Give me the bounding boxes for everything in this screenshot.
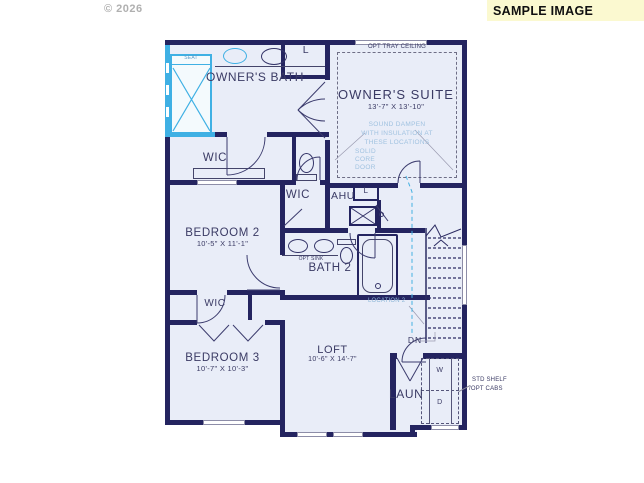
vanity-counter: [215, 66, 325, 67]
screenshot: © 2026 SAMPLE IMAGE: [0, 0, 644, 483]
wall: [420, 183, 467, 188]
cased-opening: [197, 180, 237, 185]
wall: [248, 295, 252, 320]
dryer-label: D: [421, 399, 459, 407]
floor-plan: OPT TRAY CEILING OWNER'S SUITE 13'-7" X …: [165, 40, 467, 440]
sound-note-line1: SOUND DAMPEN: [333, 121, 461, 128]
wall: [267, 132, 329, 137]
linen-hall-label: L: [353, 186, 379, 195]
shower: [170, 54, 212, 134]
tray-ceiling-label: OPT TRAY CEILING: [330, 44, 464, 51]
shower-seat-label: SEAT: [170, 56, 212, 62]
std-shelf-note-line2: /OPT CABS: [469, 386, 503, 392]
wic-shelf: [193, 168, 265, 179]
wic2-label: WIC: [273, 189, 323, 202]
loft-dim: 10'-6" X 14'-7": [280, 356, 385, 364]
wic-owner-label: WIC: [185, 152, 245, 165]
wall: [165, 180, 197, 185]
sample-image-label: SAMPLE IMAGE: [487, 4, 593, 18]
washer-label: W: [421, 367, 459, 375]
owners-suite-dim: 13'-7" X 13'-10": [330, 103, 462, 112]
std-shelf-note-line1: STD SHELF: [472, 377, 507, 383]
sink-icon: [314, 239, 334, 253]
sink-icon: [288, 239, 308, 253]
wall: [227, 290, 285, 295]
sink-icon: [261, 48, 287, 65]
toilet-icon: [299, 153, 314, 173]
ahu-valve-icon: [379, 212, 384, 217]
bedroom3-dim: 10'-7" X 10'-3": [165, 365, 280, 374]
solid-core-door-line1: SOLID: [355, 148, 395, 155]
window: [462, 245, 467, 305]
wall: [280, 320, 285, 437]
solid-core-door-line2: CORE: [355, 156, 395, 163]
location2-label: LOCATION 2: [368, 298, 428, 305]
copyright-text: © 2026: [104, 3, 143, 15]
sound-note-line2: WITH INSULATION AT: [333, 130, 461, 137]
wall: [375, 228, 425, 233]
wic3-label: WIC: [185, 298, 245, 310]
window: [431, 425, 459, 430]
wall: [165, 320, 197, 325]
window: [297, 432, 327, 437]
drain-icon: [375, 283, 381, 289]
owners-suite-label: OWNER'S SUITE: [330, 88, 462, 103]
sink-icon: [223, 48, 247, 64]
wall: [215, 132, 227, 137]
window: [333, 432, 363, 437]
linen-top-label: L: [285, 44, 327, 56]
wall: [165, 290, 197, 295]
wall: [320, 180, 330, 185]
loft-label: LOFT: [280, 344, 385, 357]
wall: [237, 180, 295, 185]
wall: [462, 40, 467, 430]
toilet-tank: [296, 174, 317, 181]
wall: [265, 320, 285, 325]
sample-image-banner: SAMPLE IMAGE: [487, 0, 644, 21]
dn-label: DN: [403, 336, 427, 346]
sound-note-line3: THESE LOCATIONS: [333, 139, 461, 146]
owners-bath-label: OWNER'S BATH: [196, 71, 314, 85]
bath2-label: BATH 2: [290, 262, 370, 275]
toilet-tank: [337, 239, 356, 245]
solid-core-door-line3: DOOR: [355, 164, 395, 171]
window: [203, 420, 245, 425]
bedroom2-dim: 10'-5" X 11'-1": [165, 240, 280, 249]
wall: [280, 228, 348, 233]
ahu-unit: [349, 206, 377, 226]
